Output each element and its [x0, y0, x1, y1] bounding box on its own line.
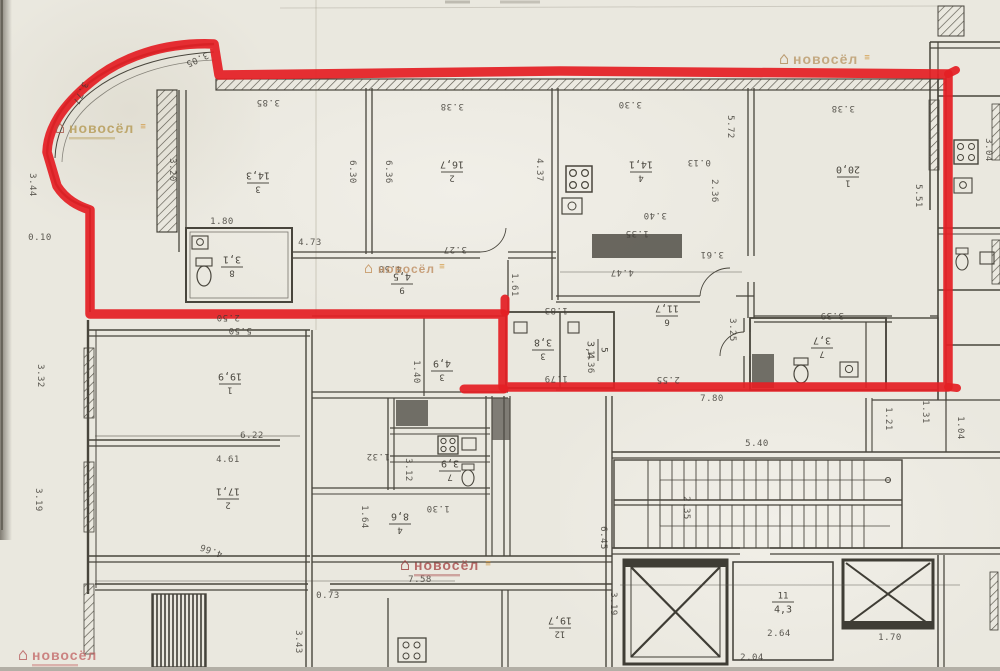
watermark-mark-icon: ≡ [864, 53, 870, 63]
room-area: 19,7 [548, 615, 572, 626]
floor-plan-scan: 314,3216,7414,1120,083,194,533,853,4611,… [0, 0, 1000, 667]
watermark: ⌂новосёл≡ [779, 49, 870, 69]
watermark-house-icon: ⌂ [18, 645, 28, 665]
watermark-house-icon: ⌂ [400, 555, 410, 575]
dark-block [396, 400, 428, 426]
watermark-brand: новосёл [414, 557, 479, 573]
dimension-label: 1.61 [509, 273, 519, 297]
dimension-label: 3.38 [831, 103, 855, 113]
dimension-label: 0.73 [316, 591, 340, 601]
room-number: 3 [540, 351, 545, 361]
dimension-label: 1.80 [210, 217, 234, 227]
dimension-label: 1.70 [878, 633, 902, 643]
room-area: 3,9 [441, 458, 459, 469]
room-area: 14,3 [246, 170, 270, 181]
dimension-label: 5.40 [745, 439, 769, 449]
dimension-label: 3.43 [293, 630, 303, 654]
room-number: 6 [664, 317, 669, 327]
room-area: 16,7 [440, 159, 464, 170]
dimension-label: 2.55 [656, 374, 680, 384]
window-hatch [992, 240, 1000, 284]
room-number: 9 [399, 285, 404, 295]
hatched-wall-block [152, 594, 206, 667]
dimension-label: 3.27 [443, 244, 467, 254]
room-number: 4 [638, 173, 643, 183]
duct-block [492, 398, 510, 440]
watermark-subline [69, 137, 115, 139]
dimension-label: 2.64 [767, 629, 791, 639]
watermark-house-icon: ⌂ [55, 118, 65, 138]
room-number: 7 [819, 349, 824, 359]
dimension-label: 1.36 [585, 350, 595, 374]
dimension-label: 1.64 [359, 505, 369, 529]
room-number: 1 [845, 178, 850, 188]
dimension-label: 3.12 [403, 458, 413, 482]
dimension-label: 5.51 [913, 184, 923, 208]
dimension-label: 2.36 [709, 179, 719, 203]
watermark-subline [414, 574, 460, 576]
window-hatch [84, 348, 94, 418]
window-hatch [84, 584, 94, 654]
room-number: 4 [397, 525, 402, 535]
dimension-label: 3.61 [700, 249, 724, 259]
dimension-label: 3.38 [440, 101, 464, 111]
room-number: 2 [449, 173, 454, 183]
dimension-label: 1.40 [411, 360, 421, 384]
dimension-label: 3.25 [727, 318, 737, 342]
dimension-label: 1.79 [544, 373, 568, 383]
dimension-label: 2.04 [740, 653, 764, 663]
dimension-label: 3.19 [33, 488, 43, 512]
dimension-label: 2.50 [216, 312, 240, 322]
dimension-label: 0.10 [28, 233, 52, 243]
dimension-label: 3.44 [27, 173, 37, 197]
room-number: 1 [227, 385, 232, 395]
room-number: 5 [599, 347, 609, 352]
dimension-label: 3.20 [167, 158, 177, 182]
room-number: 8 [229, 268, 234, 278]
dimension-label: 3.30 [618, 99, 642, 109]
watermark-brand: новосёл [69, 120, 134, 136]
room-number: 3 [255, 184, 260, 194]
room-area: 11,7 [655, 303, 679, 314]
room-area: 4,9 [433, 358, 451, 369]
dimension-label: 5.50 [228, 325, 252, 335]
dimension-label: 2.35 [681, 496, 691, 520]
dimension-label: 4.61 [216, 455, 240, 465]
window-hatch [84, 462, 94, 532]
room-area: 19,9 [218, 371, 242, 382]
dimension-label: 4.73 [298, 238, 322, 248]
dimension-label: 0.13 [687, 157, 711, 167]
room-area: 3,1 [223, 254, 241, 265]
room-number: 7 [447, 472, 452, 482]
dimension-label: 7.80 [700, 394, 724, 404]
room-number: 3 [439, 372, 444, 382]
dimension-label: 3.39 [820, 310, 844, 320]
dimension-label: 3.04 [983, 138, 993, 162]
dimension-label: 1.35 [625, 228, 649, 238]
room-area: 8,6 [391, 511, 409, 522]
room-area: 3,7 [813, 335, 831, 346]
dimension-label: 1.83 [544, 305, 568, 315]
dimension-label: 6.22 [240, 431, 264, 441]
dimension-label: 3.19 [608, 592, 618, 616]
room-number: 2 [225, 500, 230, 510]
room-area: 14,1 [629, 159, 653, 170]
dimension-label: 1.04 [955, 416, 965, 440]
dimension-label: 7.58 [408, 575, 432, 585]
floor-plan-drawing: 314,3216,7414,1120,083,194,533,853,4611,… [0, 0, 1000, 667]
dimension-label: 6.30 [347, 160, 357, 184]
watermark-mark-icon: ≡ [485, 559, 491, 569]
room-area: 17,1 [216, 486, 240, 497]
dimension-label: 3.40 [643, 210, 667, 220]
dimension-label: 6.36 [383, 160, 393, 184]
watermark-house-icon: ⌂ [364, 259, 373, 277]
watermark-brand: новосёл [378, 262, 435, 276]
dimension-label: 3.32 [35, 364, 45, 388]
dimension-label: 1.31 [920, 400, 930, 424]
watermark-brand: новосёл [793, 51, 858, 67]
watermark-mark-icon: ≡ [140, 122, 146, 132]
dimension-label: 1.30 [426, 503, 450, 513]
window-hatch [990, 572, 998, 630]
room-area: 20,0 [836, 164, 860, 175]
dimension-label: 6.45 [598, 526, 608, 550]
dimension-label: 1.21 [883, 407, 893, 431]
dimension-label: 4.47 [610, 267, 634, 277]
dimension-label: 1.32 [366, 451, 390, 461]
dimension-label: 3.85 [256, 97, 280, 107]
dimension-label: 5.72 [725, 115, 735, 139]
room-area: 3,8 [534, 337, 552, 348]
room-area: 4,3 [774, 605, 792, 616]
watermark-brand: новосёл [32, 647, 97, 663]
room-number: 12 [555, 629, 566, 639]
watermark-subline [32, 664, 78, 666]
watermark-mark-icon: ≡ [439, 262, 445, 272]
room-number: 11 [778, 592, 789, 602]
dimension-label: 4.37 [534, 158, 544, 182]
watermark-house-icon: ⌂ [779, 49, 789, 69]
